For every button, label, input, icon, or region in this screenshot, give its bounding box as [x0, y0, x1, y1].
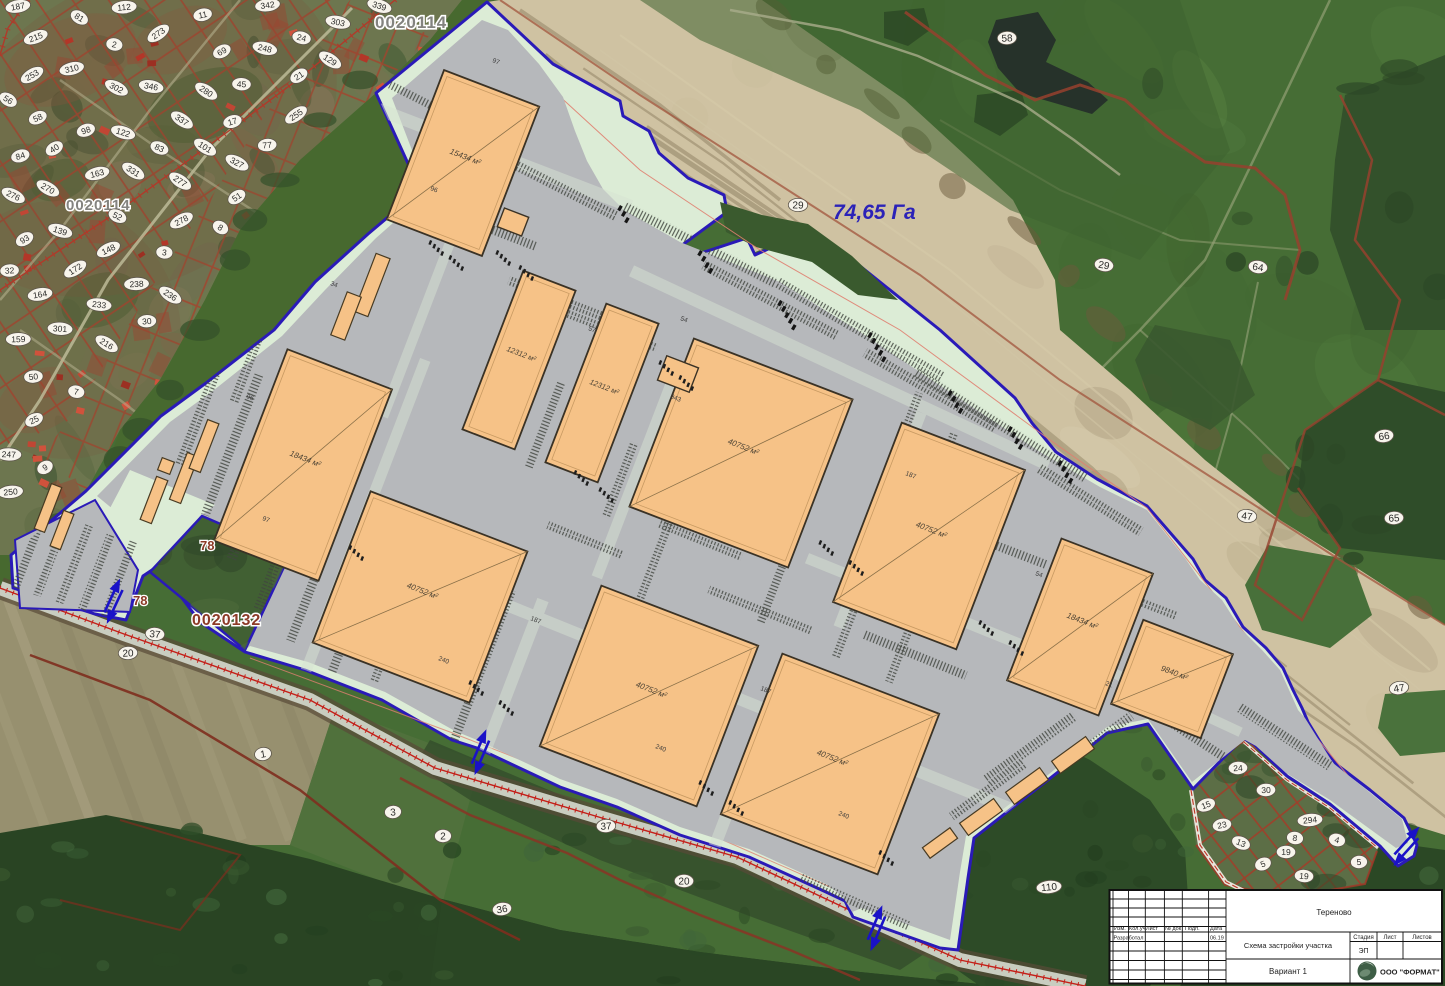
svg-text:65: 65: [1388, 513, 1400, 525]
svg-text:5: 5: [1356, 857, 1362, 867]
svg-text:0020132: 0020132: [192, 612, 261, 629]
svg-text:66: 66: [1378, 431, 1391, 444]
svg-text:Кол.уч: Кол.уч: [1129, 926, 1146, 932]
svg-text:Схема застройки участка: Схема застройки участка: [1244, 941, 1333, 950]
svg-text:19: 19: [1299, 871, 1310, 882]
svg-text:47: 47: [1241, 511, 1254, 523]
svg-text:Тереново: Тереново: [1316, 908, 1352, 917]
svg-text:Изм.: Изм.: [1114, 926, 1126, 932]
svg-text:250: 250: [3, 486, 18, 497]
svg-text:20: 20: [678, 876, 690, 887]
svg-text:77: 77: [262, 140, 273, 151]
svg-text:238: 238: [129, 279, 144, 290]
svg-text:233: 233: [91, 299, 107, 311]
svg-text:29: 29: [792, 200, 804, 211]
svg-text:37: 37: [149, 629, 162, 641]
svg-text:45: 45: [236, 79, 246, 89]
svg-text:Стадия: Стадия: [1353, 935, 1373, 941]
svg-text:№ док: № док: [1165, 926, 1182, 932]
svg-text:301: 301: [53, 323, 68, 334]
svg-text:50: 50: [28, 371, 39, 382]
svg-text:78: 78: [133, 593, 147, 608]
svg-text:24: 24: [1233, 763, 1243, 773]
svg-text:30: 30: [142, 316, 152, 327]
svg-text:Листов: Листов: [1412, 935, 1432, 941]
svg-text:Лист: Лист: [1146, 926, 1158, 932]
svg-text:0020114: 0020114: [375, 13, 447, 32]
svg-text:06.19: 06.19: [1210, 936, 1224, 942]
svg-text:19: 19: [1281, 847, 1291, 857]
svg-text:78: 78: [200, 538, 214, 553]
svg-text:74,65 Га: 74,65 Га: [833, 201, 916, 224]
svg-text:159: 159: [11, 334, 26, 344]
svg-text:32: 32: [5, 265, 15, 276]
svg-text:294: 294: [1302, 814, 1317, 825]
svg-text:Подп.: Подп.: [1185, 926, 1200, 932]
svg-text:58: 58: [1001, 33, 1013, 44]
svg-text:37: 37: [600, 821, 612, 832]
svg-text:29: 29: [1097, 260, 1110, 273]
svg-text:Лист: Лист: [1383, 935, 1396, 941]
svg-text:247: 247: [2, 449, 17, 459]
svg-text:ООО "ФОРМАТ": ООО "ФОРМАТ": [1380, 968, 1440, 977]
svg-text:Разработал: Разработал: [1114, 936, 1144, 942]
svg-text:110: 110: [1041, 882, 1058, 895]
svg-text:342: 342: [260, 0, 276, 11]
svg-text:36: 36: [496, 904, 509, 917]
svg-text:Вариант 1: Вариант 1: [1269, 967, 1307, 976]
svg-text:112: 112: [117, 2, 132, 13]
svg-text:30: 30: [1261, 785, 1271, 795]
svg-text:64: 64: [1252, 262, 1265, 275]
svg-text:Дата: Дата: [1210, 926, 1223, 932]
svg-text:20: 20: [122, 648, 134, 660]
svg-text:ЭП: ЭП: [1358, 948, 1368, 955]
svg-text:2: 2: [440, 831, 446, 842]
